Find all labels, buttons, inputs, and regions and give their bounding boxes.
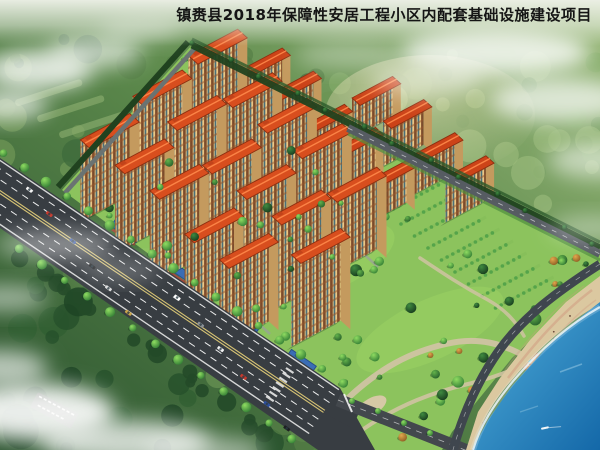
sky-haze <box>0 0 600 46</box>
rendering-image: 镇赉县2018年保障性安居工程小区内配套基础设施建设项目 <box>0 0 600 450</box>
aerial-rendering-canvas <box>0 0 600 450</box>
